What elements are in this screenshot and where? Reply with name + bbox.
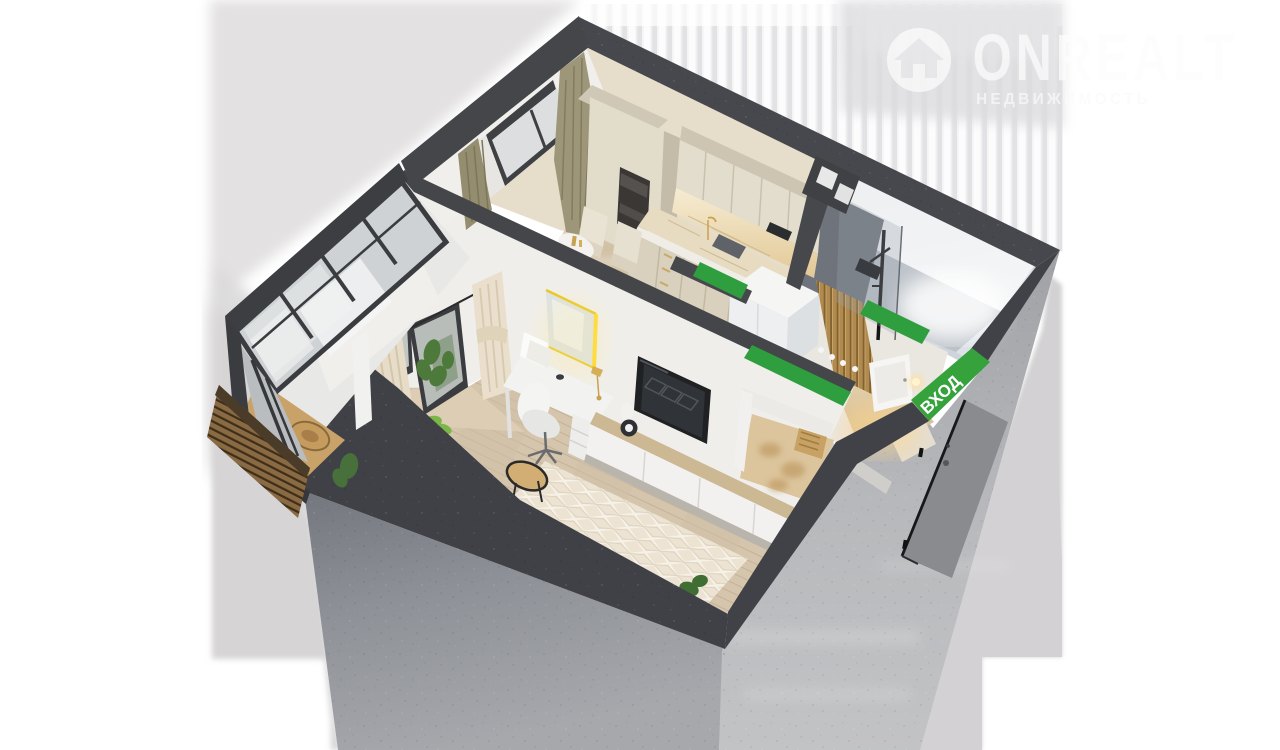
svg-text:НЕДВИЖИМОСТЬ: НЕДВИЖИМОСТЬ xyxy=(976,91,1151,108)
svg-text:ONREALT: ONREALT xyxy=(973,21,1238,94)
